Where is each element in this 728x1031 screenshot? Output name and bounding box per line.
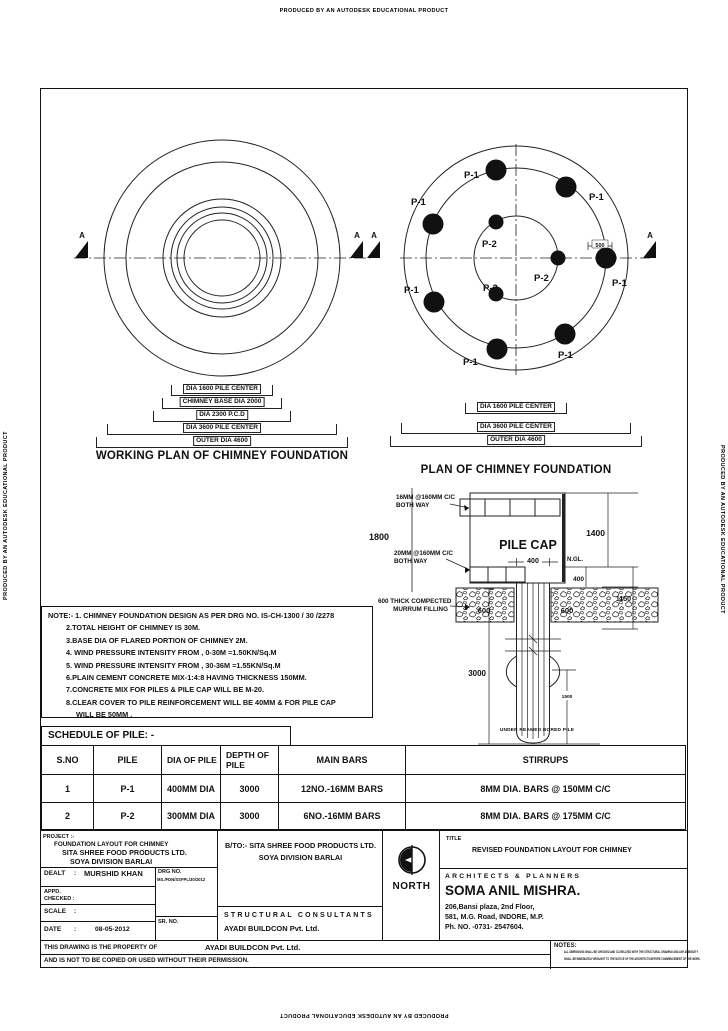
colon: : (74, 926, 76, 933)
p1-label: P-1 (464, 170, 480, 181)
note-line: 5. WIND PRESSURE INTENSITY FROM , 30-36M… (42, 660, 372, 672)
title-block-north: NORTH (383, 831, 440, 941)
dim-bracket: DIA 3600 PILE CENTER (401, 423, 631, 434)
divider (40, 904, 155, 905)
cell-pile: P-2 (94, 803, 162, 829)
divider (40, 886, 155, 887)
pile-cap-section (412, 488, 658, 744)
dim-1500: 1500 (562, 694, 573, 700)
property-company: AYADI BUILDCON Pvt. Ltd. (205, 943, 300, 952)
edge-dim-text: 500 (595, 243, 604, 249)
p1-piles (423, 160, 617, 360)
address-line3: Ph. NO. -0731- 2547604. (445, 924, 524, 931)
address-line2: 581, M.G. Road, INDORE, M.P. (445, 914, 544, 921)
dim-bracket: DIA 1600 PILE CENTER (465, 403, 567, 414)
dim-bracket: DIA 3600 PILE CENTER (107, 424, 337, 435)
p1-label: P-1 (558, 350, 574, 361)
property-text-1: THIS DRAWING IS THE PROPERTY OF (44, 944, 157, 951)
dim-label: CHIMNEY BASE DIA 2000 (180, 397, 265, 407)
dealt-label: DEALT (44, 870, 65, 877)
murrum-line1: 600 THICK COMPECTED (378, 598, 448, 606)
drg-no-label: DRG NO. (158, 869, 182, 875)
consultants-label: STRUCTURAL CONSULTANTS (224, 912, 374, 919)
notes-box: NOTE:- 1. CHIMNEY FOUNDATION DESIGN AS P… (41, 606, 373, 718)
top-rebar-line1: 16MM @160MM C/C (396, 494, 455, 502)
dim-bracket: DIA 2300 P.C.D (153, 411, 291, 422)
divider (440, 868, 688, 869)
schedule-title: SCHEDULE OF PILE: - (41, 726, 291, 745)
bottom-rebar-note: 20MM @160MM C/C BOTH WAY (394, 550, 453, 565)
murrum-note: 600 THICK COMPECTED MURRUM FILLING (378, 598, 448, 613)
note-line: NOTE:- 1. CHIMNEY FOUNDATION DESIGN AS P… (42, 610, 372, 622)
title-label: TITLE (446, 836, 461, 842)
project-label: PROJECT :- (43, 834, 74, 840)
title-block-project: PROJECT :- FOUNDATION LAYOUT FOR CHIMNEY… (40, 831, 218, 941)
dim-label: DIA 1600 PILE CENTER (183, 384, 261, 394)
note-line: 3.BASE DIA OF FLARED PORTION OF CHIMNEY … (42, 635, 372, 647)
p1-label: P-1 (612, 278, 628, 289)
bottom-rebar-line1: 20MM @160MM C/C (394, 550, 453, 558)
working-plan-dim-stack: DIA 1600 PILE CENTER CHIMNEY BASE DIA 20… (97, 385, 347, 448)
note-line: 7.CONCRETE MIX FOR PILES & PILE CAP WILL… (42, 684, 372, 696)
dim-400-pile: 400 (527, 558, 539, 565)
architect-name: SOMA ANIL MISHRA. (445, 883, 580, 898)
col-header-dia: DIA OF PILE (162, 746, 221, 775)
marker-a: A (79, 231, 85, 240)
property-text-2: AND IS NOT TO BE COPIED OR USED WITHOUT … (44, 957, 249, 964)
footer-notes-line1: ALL DIMENSIONS SHALL BE CHECKED AND CO-R… (564, 950, 698, 954)
bto-line1: B/TO:- SITA SHREE FOOD PRODUCTS LTD. (222, 841, 379, 850)
dim-bracket: CHIMNEY BASE DIA 2000 (162, 398, 282, 409)
cell-sno: 1 (42, 775, 94, 803)
section-cut-markers (75, 241, 656, 258)
divider (40, 921, 155, 922)
address-line1: 206,Bansi plaza, 2nd Floor, (445, 904, 534, 911)
col-header-pile: PILE (94, 746, 162, 775)
dim-bracket: OUTER DIA 4600 (390, 436, 642, 447)
cell-stirrups: 8MM DIA. BARS @ 150MM C/C (406, 775, 685, 803)
col-header-main-bars: MAIN BARS (279, 746, 406, 775)
consultants-name: AYADI BUILDCON Pvt. Ltd. (224, 924, 319, 933)
north-label: NORTH (383, 881, 440, 892)
cell-depth: 3000 (221, 775, 279, 803)
dim-label: OUTER DIA 4600 (193, 436, 251, 446)
cell-main-bars: 12NO.-16MM BARS (279, 775, 406, 803)
north-icon (395, 843, 429, 877)
colon: : (74, 908, 76, 915)
top-rebar-note: 16MM @160MM C/C BOTH WAY (396, 494, 455, 509)
pile-plan-dim-stack: DIA 1600 PILE CENTER DIA 3600 PILE CENTE… (391, 403, 641, 447)
working-plan-caption: WORKING PLAN OF CHIMNEY FOUNDATION (90, 450, 354, 462)
date-label: DATE (44, 926, 61, 933)
dim-3000: 3000 (468, 669, 486, 678)
divider (155, 867, 156, 941)
colon: : (74, 870, 76, 877)
murrum-dim-left: 600 (478, 606, 491, 615)
p2-label: P-2 (482, 239, 497, 250)
title-block-architect: TITLE REVISED FOUNDATION LAYOUT FOR CHIM… (440, 831, 688, 941)
pile-schedule-table: S.NO PILE DIA OF PILE DEPTH OF PILE MAIN… (41, 745, 686, 830)
p1-label: P-1 (404, 285, 420, 296)
title-block: PROJECT :- FOUNDATION LAYOUT FOR CHIMNEY… (40, 830, 688, 940)
p2-label: P-2 (483, 283, 498, 294)
drg-no-value: MS./FDN/SSFPL/30/2012 (157, 877, 205, 882)
drawing-sheet: PRODUCED BY AN AUTODESK EDUCATIONAL PROD… (0, 0, 728, 1031)
dealt-value: MURSHID KHAN (84, 869, 143, 878)
dim-label: DIA 3600 PILE CENTER (183, 423, 261, 433)
checked-label: CHECKED : (44, 896, 75, 902)
divider (155, 916, 218, 917)
note-line: 2.TOTAL HEIGHT OF CHIMNEY IS 30M. (42, 622, 372, 634)
cell-sno: 2 (42, 803, 94, 829)
col-header-sno: S.NO (42, 746, 94, 775)
footer-notes-label: NOTES: (554, 943, 577, 949)
dim-400-ngl: 400 (573, 576, 584, 583)
footer-notes-line2: SHALL BE IMMEDIATELY BROUGHT TO THE NOTI… (564, 957, 700, 961)
p2-label: P-2 (534, 273, 549, 284)
top-rebar-line2: BOTH WAY (396, 502, 455, 510)
section-marker-letters: A A A A (79, 231, 653, 240)
project-line3: SOYA DIVISION BARLAI (70, 857, 152, 866)
marker-a: A (647, 231, 653, 240)
bottom-rebar-line2: BOTH WAY (394, 558, 453, 566)
date-value: 08-05-2012 (95, 926, 130, 933)
cell-dia: 300MM DIA (162, 803, 221, 829)
dim-label: DIA 3600 PILE CENTER (477, 422, 555, 432)
divider (40, 954, 550, 955)
note-line: 4. WIND PRESSURE INTENSITY FROM , 0-30M … (42, 647, 372, 659)
marker-a: A (354, 231, 360, 240)
pile-cap-label: PILE CAP (499, 538, 557, 552)
title-block-client: B/TO:- SITA SHREE FOOD PRODUCTS LTD. SOY… (218, 831, 383, 941)
dim-label: DIA 2300 P.C.D (196, 410, 248, 420)
marker-a: A (371, 231, 377, 240)
p1-label: P-1 (463, 357, 479, 368)
architects-label: ARCHITECTS & PLANNERS (445, 873, 581, 880)
cell-depth: 3000 (221, 803, 279, 829)
col-header-depth: DEPTH OF PILE (221, 746, 279, 775)
cell-pile: P-1 (94, 775, 162, 803)
pile-sketch-caption: UNDER REAMED BORED PILE (493, 728, 581, 733)
divider (218, 906, 383, 907)
footer-strip: THIS DRAWING IS THE PROPERTY OF AYADI BU… (40, 940, 688, 968)
project-line2: SITA SHREE FOOD PRODUCTS LTD. (62, 848, 187, 857)
drawing-title: REVISED FOUNDATION LAYOUT FOR CHIMNEY (472, 847, 632, 854)
murrum-line2: MURRUM FILLING (378, 606, 448, 614)
bto-line2: SOYA DIVISION BARLAI (222, 853, 379, 862)
dim-1800: 1800 (369, 532, 389, 542)
sr-no-label: SR. NO. (158, 919, 178, 925)
dim-bracket: OUTER DIA 4600 (96, 437, 348, 448)
p1-label: P-1 (411, 197, 427, 208)
cell-main-bars: 6NO.-16MM BARS (279, 803, 406, 829)
appd-label: APPD. (44, 889, 61, 895)
pile-plan-caption: PLAN OF CHIMNEY FOUNDATION (384, 464, 648, 476)
cell-dia: 400MM DIA (162, 775, 221, 803)
project-line1: FOUNDATION LAYOUT FOR CHIMNEY (54, 841, 168, 848)
note-line: 6.PLAIN CEMENT CONCRETE MIX-1:4:8 HAVING… (42, 672, 372, 684)
p1-label: P-1 (589, 192, 605, 203)
note-line: 8.CLEAR COVER TO PILE REINFORCEMENT WILL… (42, 697, 372, 709)
dim-label: DIA 1600 PILE CENTER (477, 402, 555, 412)
murrum-dim-right: 600 (561, 606, 574, 615)
ngl-label: N.GL. (567, 557, 583, 563)
dim-1400: 1400 (586, 528, 605, 538)
dim-1150: 1150 (616, 596, 631, 603)
cell-stirrups: 8MM DIA. BARS @ 175MM C/C (406, 803, 685, 829)
col-header-stirrups: STIRRUPS (406, 746, 685, 775)
divider (40, 867, 218, 868)
scale-label: SCALE (44, 908, 66, 915)
note-line: WILL BE 50MM . (42, 709, 372, 721)
divider (550, 941, 551, 969)
dim-label: OUTER DIA 4600 (487, 435, 545, 445)
dim-bracket: DIA 1600 PILE CENTER (171, 385, 273, 396)
